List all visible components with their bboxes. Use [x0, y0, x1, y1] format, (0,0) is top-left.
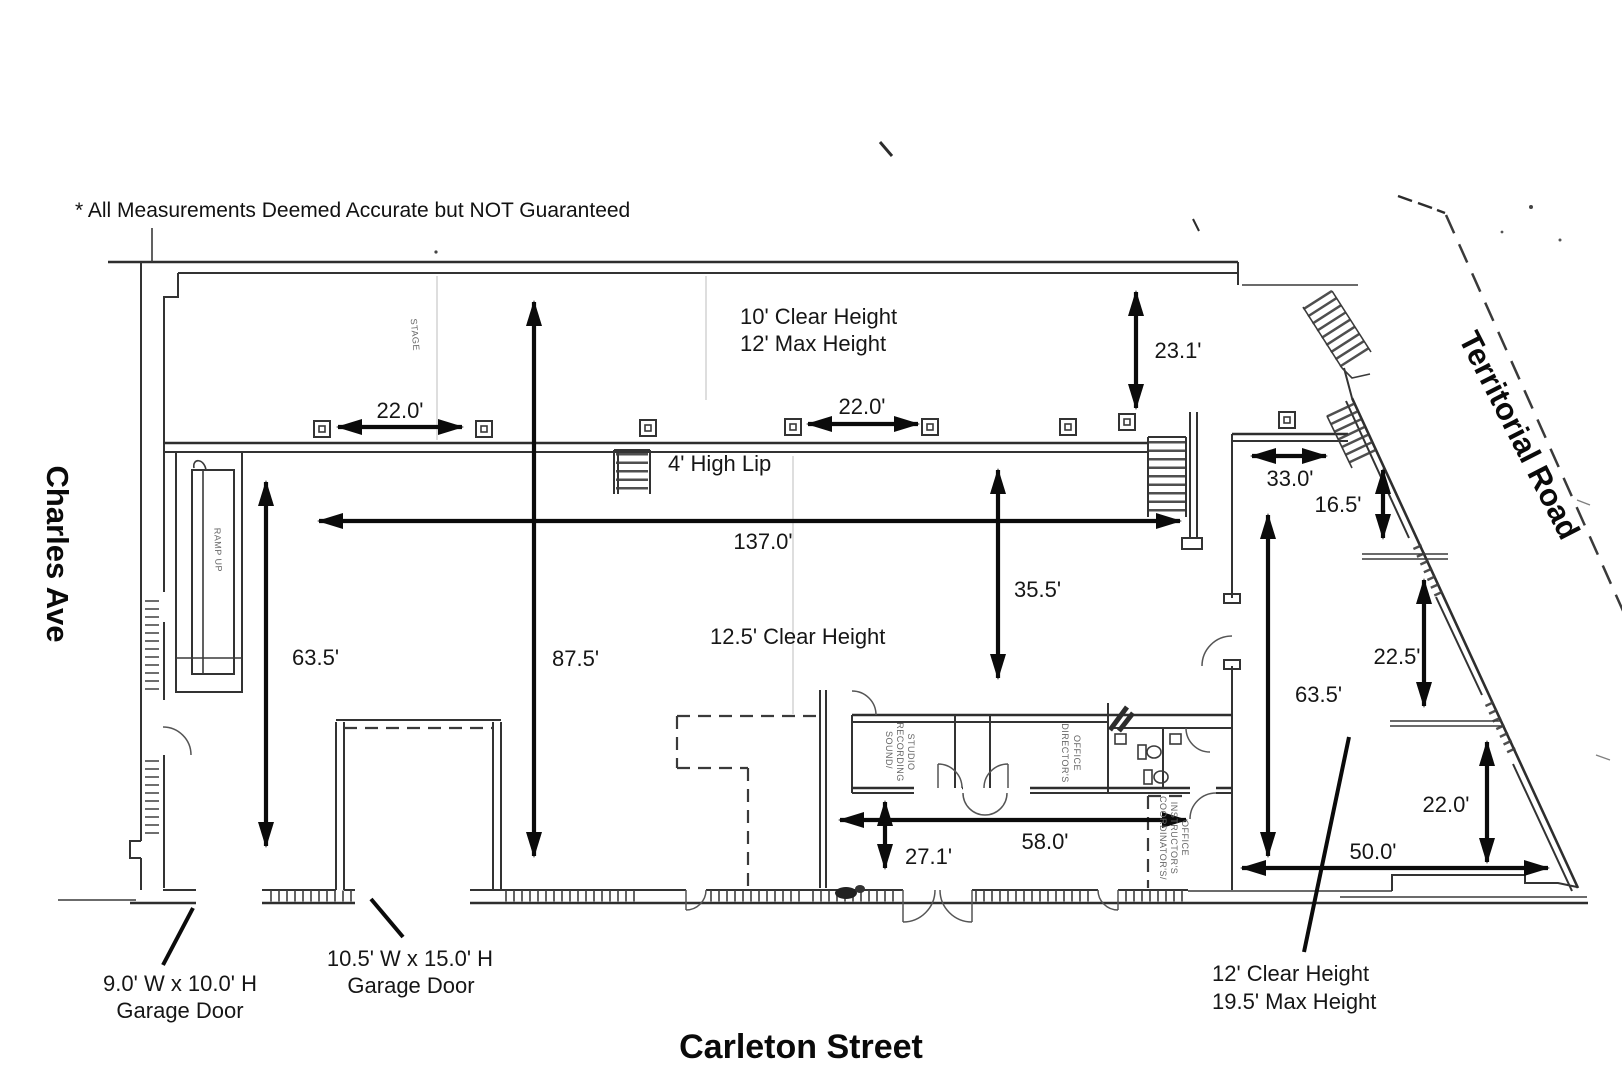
- dim-right-mid-depth: 22.5': [1373, 644, 1420, 669]
- labels: * All Measurements Deemed Accurate but N…: [40, 199, 1587, 1066]
- disclaimer-text: * All Measurements Deemed Accurate but N…: [75, 199, 630, 222]
- street-territorial-road: Territorial Road: [1452, 325, 1587, 545]
- street-charles-ave: Charles Ave: [40, 466, 75, 643]
- dim-hall-length: 137.0': [733, 529, 792, 554]
- room-ramp: RAMP UP: [212, 528, 224, 573]
- dim-right-depth: 63.5': [1295, 682, 1342, 707]
- floorplan-svg: * All Measurements Deemed Accurate but N…: [0, 0, 1622, 1080]
- room-studio-line3: STUDIO: [906, 733, 916, 770]
- dim-stage-depth: 23.1': [1154, 338, 1201, 363]
- stage-clear-height-line1: 10' Clear Height: [740, 304, 897, 329]
- columns: [314, 412, 1295, 437]
- dim-bay-spacing-a: 22.0': [376, 398, 423, 423]
- room-stage: STAGE: [409, 318, 422, 351]
- garage-small-size: 9.0' W x 10.0' H: [103, 971, 257, 996]
- dim-mid-depth: 35.5': [1014, 577, 1061, 602]
- street-carleton: Carleton Street: [679, 1028, 923, 1066]
- dim-bay-spacing-b: 22.0': [838, 394, 885, 419]
- stairs: [614, 291, 1371, 517]
- garage-small-label: Garage Door: [116, 998, 243, 1023]
- dimension-arrows: [266, 292, 1548, 868]
- room-coordinator-line2: INSTRUCTOR'S: [1169, 802, 1179, 875]
- room-studio-line1: SOUND/: [884, 731, 894, 769]
- floorplan-page: * All Measurements Deemed Accurate but N…: [0, 0, 1622, 1080]
- dim-right-lower-depth: 22.0': [1422, 792, 1469, 817]
- room-coordinator-line1: COORDINATOR'S/: [1158, 796, 1168, 880]
- dim-right-width: 50.0': [1349, 839, 1396, 864]
- dim-office-depth: 27.1': [905, 844, 952, 869]
- room-director-line1: DIRECTOR'S: [1060, 723, 1070, 783]
- doors-and-arcs: [163, 636, 1232, 922]
- dim-right-nook-depth: 16.5': [1314, 492, 1361, 517]
- ramp: [176, 452, 242, 692]
- main-clear-height-note: 12.5' Clear Height: [710, 624, 885, 649]
- building-outline: [58, 228, 1588, 903]
- right-clear-height-line1: 12' Clear Height: [1212, 961, 1369, 986]
- garage-large-size: 10.5' W x 15.0' H: [327, 946, 493, 971]
- room-director-line2: OFFICE: [1072, 735, 1082, 771]
- dim-hall-depth: 63.5': [292, 645, 339, 670]
- site-lines: [1242, 196, 1622, 622]
- high-lip-note: 4' High Lip: [668, 451, 771, 476]
- room-studio-line2: RECORDING: [895, 722, 905, 782]
- room-coordinator-line3: OFFICE: [1180, 820, 1190, 856]
- right-clear-height-line2: 19.5' Max Height: [1212, 989, 1376, 1014]
- dim-office-width: 58.0': [1021, 829, 1068, 854]
- dim-right-top-width: 33.0': [1266, 466, 1313, 491]
- garage-large-label: Garage Door: [347, 973, 474, 998]
- stage-clear-height-line2: 12' Max Height: [740, 331, 886, 356]
- dim-overall-depth: 87.5': [552, 646, 599, 671]
